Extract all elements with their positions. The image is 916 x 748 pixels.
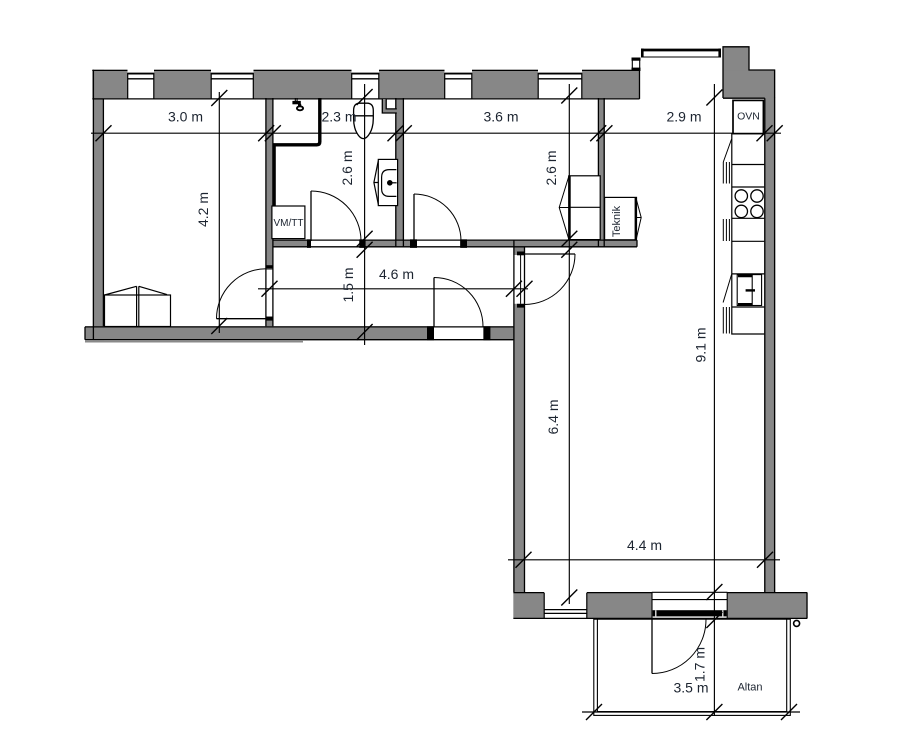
svg-text:3.6 m: 3.6 m (483, 109, 518, 125)
svg-text:Teknik: Teknik (611, 205, 623, 237)
svg-text:VM/TT: VM/TT (274, 218, 304, 229)
svg-text:9.1 m: 9.1 m (693, 327, 709, 362)
svg-text:2.3 m: 2.3 m (321, 109, 356, 125)
svg-text:4.2 m: 4.2 m (195, 192, 211, 227)
svg-text:4.6 m: 4.6 m (379, 266, 414, 282)
svg-text:2.6 m: 2.6 m (339, 150, 355, 185)
svg-text:OVN: OVN (737, 111, 760, 123)
svg-text:2.6 m: 2.6 m (543, 150, 559, 185)
svg-text:1.7 m: 1.7 m (692, 647, 708, 682)
svg-text:3.0 m: 3.0 m (168, 109, 203, 125)
svg-text:Altan: Altan (737, 682, 762, 694)
svg-text:6.4 m: 6.4 m (545, 399, 561, 434)
svg-text:1.5 m: 1.5 m (340, 267, 356, 302)
svg-text:4.4 m: 4.4 m (627, 537, 662, 553)
svg-text:2.9 m: 2.9 m (666, 109, 701, 125)
